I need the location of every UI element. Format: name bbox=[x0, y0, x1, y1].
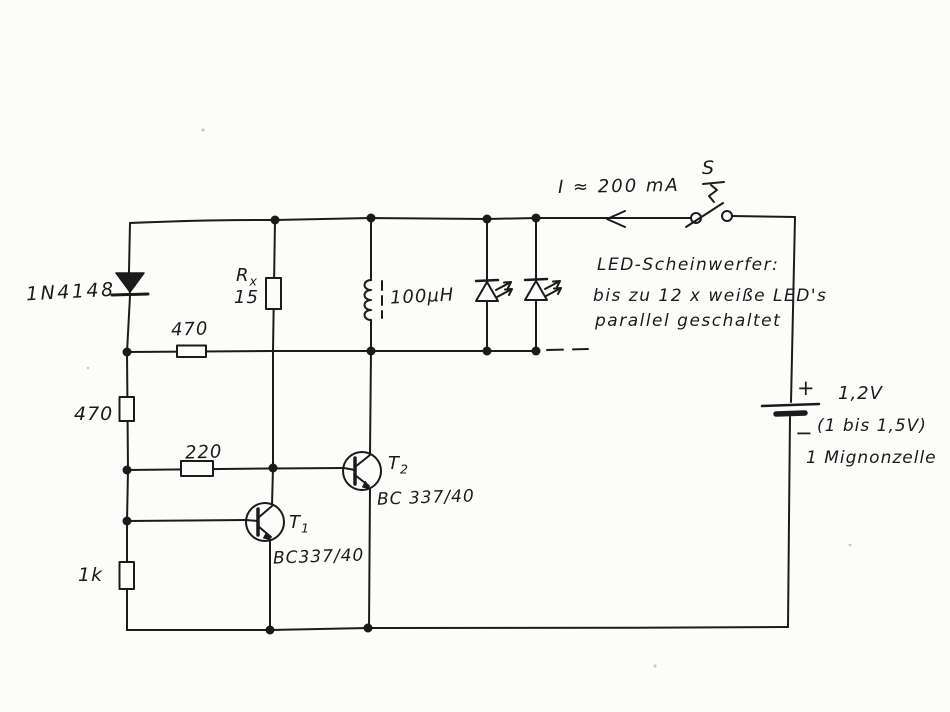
label-inductor: 100μH bbox=[390, 285, 455, 308]
wire-t2-emitter bbox=[369, 489, 370, 628]
label-resistor-rx: Rx 15 bbox=[234, 266, 259, 308]
label-diode-1n4148: 1N4148 bbox=[26, 280, 117, 305]
transistor-t1-symbol bbox=[246, 503, 284, 541]
led2-symbol bbox=[525, 279, 561, 300]
label-battery-plus: + bbox=[797, 377, 816, 400]
battery-symbol bbox=[762, 404, 819, 414]
wire-mid-rail-dashed bbox=[547, 349, 588, 350]
wire-220-branch bbox=[127, 468, 344, 470]
note-line2: bis zu 12 x weiße LED's bbox=[593, 287, 827, 305]
current-arrow bbox=[607, 211, 625, 227]
junction-dots bbox=[123, 214, 541, 635]
label-transistor-t2-part: BC 337/40 bbox=[377, 487, 475, 509]
wires bbox=[127, 216, 795, 630]
label-resistor-470h: 470 bbox=[171, 319, 209, 340]
wire-top-rail-right bbox=[732, 216, 795, 402]
rx-value: 15 bbox=[234, 287, 259, 308]
schematic-page: 1N4148 Rx 15 470 100μH 470 220 1k T1 BC3… bbox=[0, 0, 950, 712]
label-resistor-1k: 1k bbox=[78, 565, 103, 586]
label-current: I ≈ 200 mA bbox=[558, 176, 680, 198]
battery-plate-negative bbox=[776, 413, 805, 414]
label-battery-minus: − bbox=[795, 422, 814, 445]
label-battery-cell: 1 Mignonzelle bbox=[806, 449, 937, 467]
switch-symbol bbox=[686, 182, 732, 227]
resistor-470v-symbol bbox=[120, 397, 135, 421]
resistor-1k-symbol bbox=[120, 562, 135, 589]
label-transistor-t1: T1 bbox=[289, 513, 309, 535]
label-battery-range: (1 bis 1,5V) bbox=[817, 417, 927, 435]
label-resistor-220: 220 bbox=[185, 442, 223, 463]
inductor-symbol bbox=[365, 280, 383, 320]
wire-t1-base bbox=[127, 520, 246, 521]
switch-spring bbox=[709, 185, 717, 202]
wire-bottom-rail bbox=[127, 627, 788, 630]
transistor-t2-symbol bbox=[343, 452, 381, 490]
label-transistor-t2: T2 bbox=[388, 454, 408, 476]
label-resistor-470v: 470 bbox=[74, 404, 113, 425]
label-battery-voltage: 1,2V bbox=[838, 384, 883, 403]
wire-inductor-branch bbox=[370, 218, 371, 454]
resistor-rx-symbol bbox=[266, 278, 281, 309]
scan-specks bbox=[87, 128, 852, 667]
led1-symbol bbox=[476, 280, 512, 301]
resistor-470h-symbol bbox=[177, 346, 206, 358]
rx-name: Rx bbox=[236, 265, 257, 286]
diode-1n4148-symbol bbox=[112, 273, 148, 295]
wire-rx-branch bbox=[272, 220, 275, 505]
note-line1: LED-Scheinwerfer: bbox=[597, 256, 779, 274]
label-switch: S bbox=[702, 158, 715, 179]
note-line3: parallel geschaltet bbox=[595, 312, 781, 330]
label-transistor-t1-part: BC337/40 bbox=[273, 546, 365, 568]
circuit-drawing bbox=[0, 0, 950, 712]
wire-right-rail-bottom bbox=[788, 417, 790, 627]
battery-plate-positive bbox=[762, 404, 819, 406]
